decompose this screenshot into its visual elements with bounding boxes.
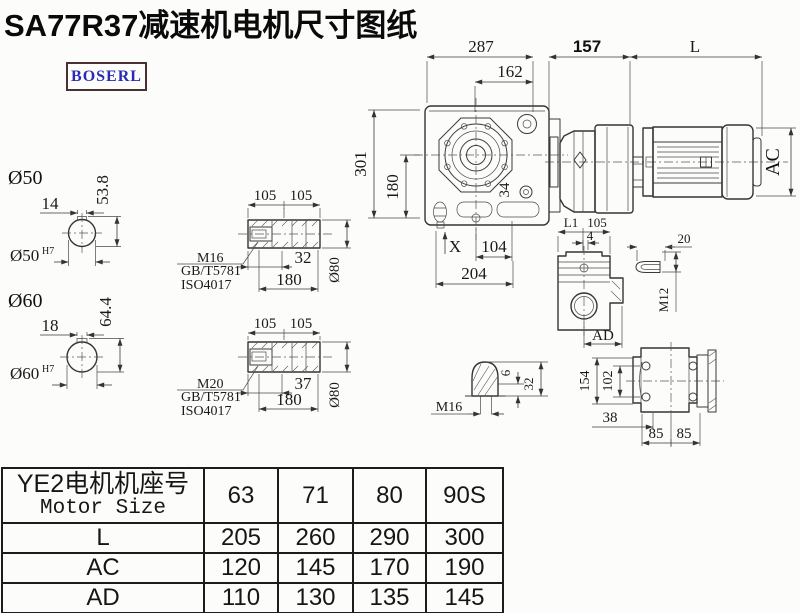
cell: 130 [278, 583, 353, 613]
cell: 290 [353, 523, 426, 553]
shaft50-bore: Ø50 [10, 246, 39, 265]
cell: 110 [204, 583, 278, 613]
table-col-80: 80 [353, 468, 426, 523]
cell: 260 [278, 523, 353, 553]
side-dim-L1: L1 [564, 215, 578, 230]
motor-size-table: YE2电机机座号 Motor Size 63 71 80 90S L 205 2… [1, 467, 502, 613]
shaft60-bore: Ø60 [10, 364, 39, 383]
shaft50-bore-tol: H7 [42, 246, 54, 257]
cell: 190 [426, 553, 503, 583]
side-dim-AD: AD [592, 328, 614, 344]
cell: 145 [278, 553, 353, 583]
cell: 120 [204, 553, 278, 583]
side-dim-4: 4 [587, 228, 594, 243]
plug-dim-6: 6 [498, 369, 513, 376]
mounting-face-view: 154 102 38 85 85 [578, 342, 724, 447]
bushing-top-105a: 105 [254, 188, 277, 204]
dim-104: 104 [481, 237, 507, 256]
drawing-sheet: SA77R37减速机电机尺寸图纸 BOSERL [0, 0, 800, 613]
key-thread-M12: M12 [656, 288, 671, 313]
shaft50-key-width: 14 [42, 194, 60, 213]
breather-plug-detail: M16 6 32 [431, 362, 548, 415]
shaft-key-detail: 20 M12 [627, 231, 692, 312]
bushing-detail-top: 105 105 M16 GB/T5781 ISO4017 32 180 Ø80 [177, 188, 351, 293]
shaft60-key-width: 18 [42, 316, 59, 335]
table-col-71: 71 [278, 468, 353, 523]
plug-thread-M16: M16 [436, 400, 462, 415]
bushing-bottom-std2: ISO4017 [181, 404, 232, 419]
bushing-top-len: 180 [276, 270, 302, 289]
main-assembly-view: 287 162 157 L AC 301 180 34 X 104 204 [351, 37, 796, 288]
bushing-top-depth: 32 [295, 248, 312, 267]
bushing-detail-bottom: 105 105 M20 GB/T5781 ISO4017 37 180 Ø80 [177, 316, 351, 419]
back-dim-154: 154 [578, 371, 593, 392]
table-row-L: L 205 260 290 300 [2, 523, 503, 553]
shaft-section-50: Ø50 14 53.8 Ø50 H7 [8, 167, 121, 266]
bushing-top-std2: ISO4017 [181, 278, 232, 293]
bushing-top-std1: GB/T5781 [181, 264, 241, 279]
bushing-bottom-std1: GB/T5781 [181, 390, 241, 405]
shaft60-label: Ø60 [8, 290, 42, 312]
dim-204: 204 [461, 264, 487, 283]
table-col-90S: 90S [426, 468, 503, 523]
back-dim-85b: 85 [677, 426, 692, 442]
row-label: L [2, 523, 204, 553]
shaft50-key-height: 53.8 [93, 175, 112, 205]
bushing-bottom-105a: 105 [254, 316, 277, 332]
key-dim-20: 20 [678, 231, 691, 246]
back-dim-38: 38 [603, 410, 618, 426]
dim-157: 157 [573, 37, 601, 56]
dim-301: 301 [351, 151, 370, 177]
back-dim-85a: 85 [649, 426, 664, 442]
table-header-en: Motor Size [3, 497, 203, 520]
bushing-bottom-dia: Ø80 [327, 382, 343, 408]
row-label: AC [2, 553, 204, 583]
dim-287: 287 [468, 37, 494, 56]
cell: 145 [426, 583, 503, 613]
dim-180: 180 [383, 174, 402, 200]
table-row-AD: AD 110 130 135 145 [2, 583, 503, 613]
bushing-top-105b: 105 [290, 188, 313, 204]
dim-L: L [690, 37, 700, 56]
bushing-top-dia: Ø80 [327, 257, 343, 283]
bushing-bottom-105b: 105 [290, 316, 313, 332]
table-header-cn: YE2电机机座号 [3, 471, 203, 497]
cell: 135 [353, 583, 426, 613]
technical-drawing: 287 162 157 L AC 301 180 34 X 104 204 [0, 0, 800, 465]
dim-AC: AC [762, 148, 784, 176]
table-col-63: 63 [204, 468, 278, 523]
cell: 205 [204, 523, 278, 553]
plug-dim-32: 32 [521, 378, 536, 391]
cell: 300 [426, 523, 503, 553]
shaft60-bore-tol: H7 [42, 364, 54, 375]
table-row-AC: AC 120 145 170 190 [2, 553, 503, 583]
shaft50-label: Ø50 [8, 167, 42, 189]
cell: 170 [353, 553, 426, 583]
dim-162: 162 [497, 62, 523, 81]
dim-34: 34 [497, 182, 513, 198]
table-header-row: YE2电机机座号 Motor Size 63 71 80 90S [2, 468, 503, 523]
shaft60-key-height: 64.4 [96, 297, 115, 327]
shaft-section-60: Ø60 18 64.4 Ø60 H7 [8, 290, 124, 389]
bushing-bottom-len: 180 [276, 390, 302, 409]
gearbox-side-view: L1 105 4 AD [558, 215, 623, 348]
table-header-label: YE2电机机座号 Motor Size [2, 468, 204, 523]
back-dim-102: 102 [601, 371, 616, 392]
dim-X: X [449, 237, 461, 256]
row-label: AD [2, 583, 204, 613]
